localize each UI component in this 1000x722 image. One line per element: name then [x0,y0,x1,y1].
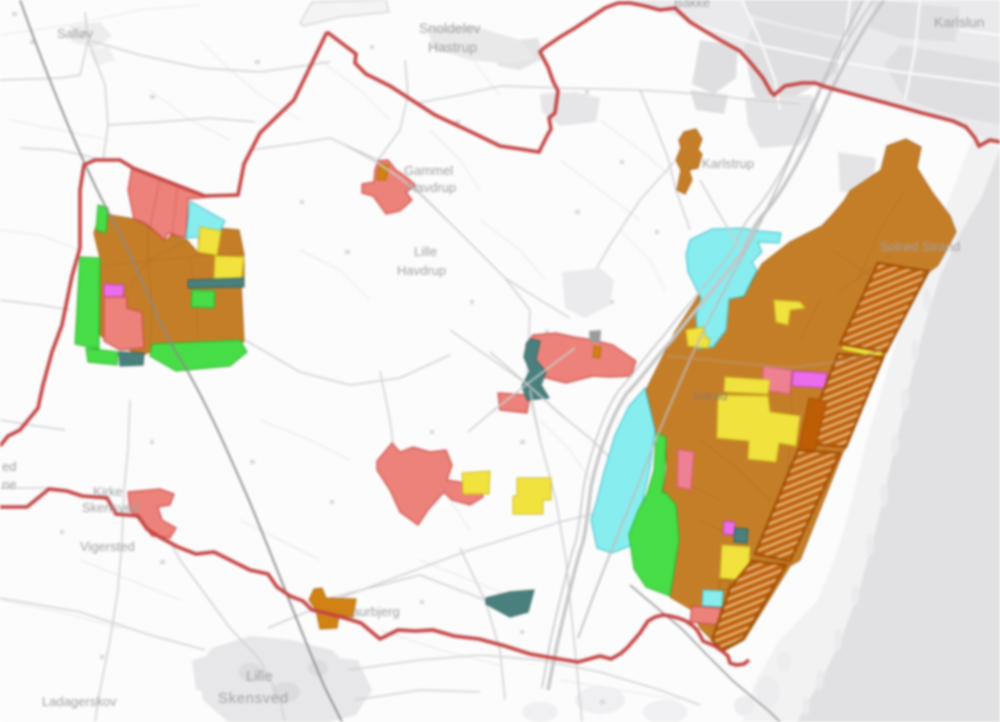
svg-text:Bakke: Bakke [674,0,710,10]
svg-text:Salløv: Salløv [57,26,94,41]
svg-text:Vigersted: Vigersted [80,539,135,554]
svg-text:Solrød: Solrød [692,389,727,403]
svg-text:Lille: Lille [246,668,273,685]
svg-text:Havdrup: Havdrup [397,263,446,278]
svg-text:Skensved: Skensved [218,690,289,707]
svg-text:Gammel: Gammel [404,163,453,178]
svg-text:Ladagerskov: Ladagerskov [42,694,117,709]
svg-text:Havdrup: Havdrup [407,180,456,195]
svg-text:ne: ne [2,477,16,492]
svg-text:Solrød Strand: Solrød Strand [880,239,960,254]
svg-text:Lille: Lille [414,244,437,259]
svg-text:Karlslun: Karlslun [934,14,985,30]
svg-text:Karlstrup: Karlstrup [702,156,754,171]
svg-text:Kirke: Kirke [93,484,123,499]
svg-text:aurbjerg: aurbjerg [352,604,400,619]
svg-text:Skensved: Skensved [82,500,139,515]
svg-text:Snoldelev: Snoldelev [419,20,481,36]
svg-text:ed: ed [2,459,16,474]
svg-text:Hastrup: Hastrup [428,39,477,55]
